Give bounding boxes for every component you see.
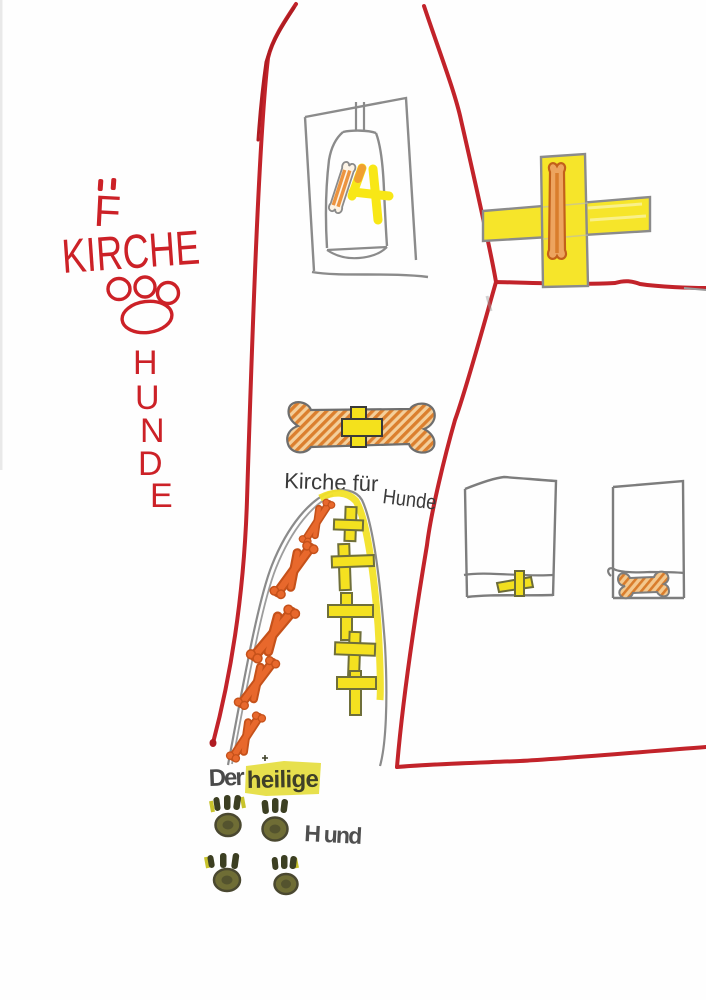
svg-text:E: E <box>150 477 173 515</box>
svg-text:H und: H und <box>304 820 363 849</box>
svg-text:Der: Der <box>208 764 245 792</box>
svg-text:H: H <box>133 344 158 382</box>
svg-text:heilige: heilige <box>247 766 319 794</box>
svg-text:KIRCHE: KIRCHE <box>60 221 201 283</box>
